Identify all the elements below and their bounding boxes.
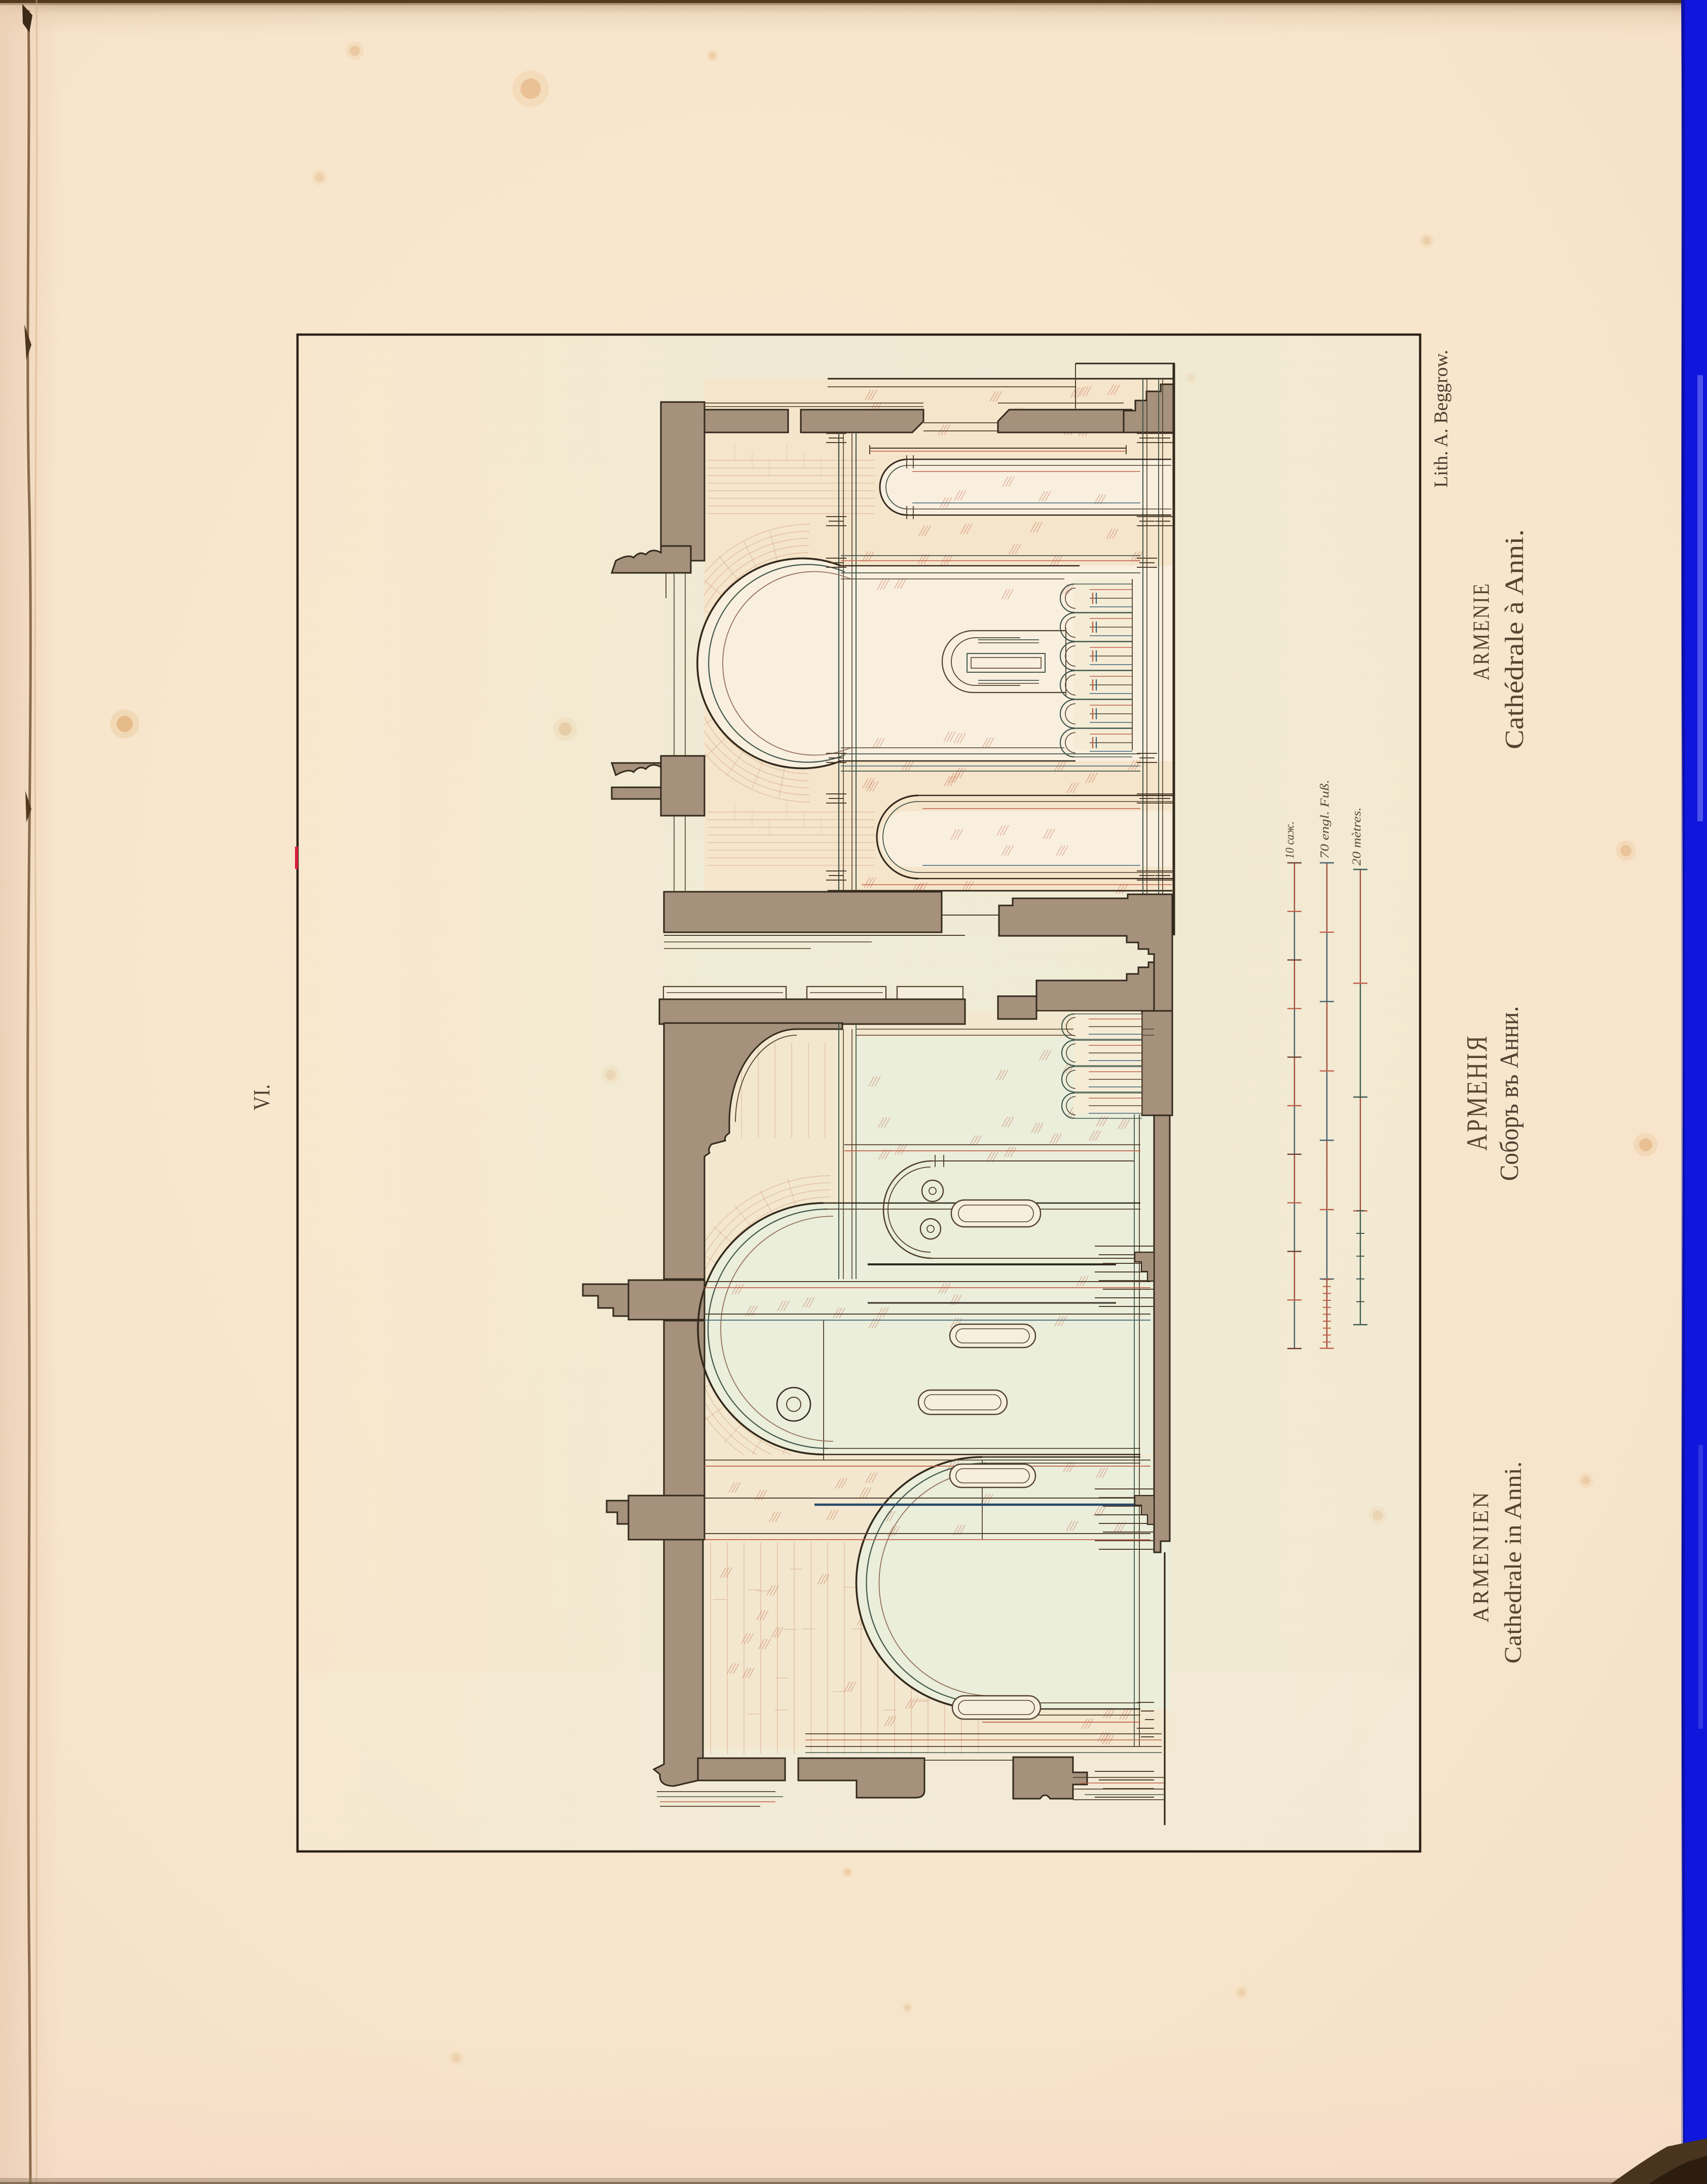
svg-text:ARMENIE: ARMENIE [1468, 582, 1494, 680]
svg-text:Cathedrale in Anni.: Cathedrale in Anni. [1500, 1462, 1527, 1664]
svg-text:АРМЕНІЯ: АРМЕНІЯ [1460, 1034, 1493, 1151]
svg-text:20 mètres.: 20 mètres. [1351, 808, 1364, 866]
svg-text:10 саж.: 10 саж. [1284, 821, 1297, 859]
svg-text:Cathédrale à Anni.: Cathédrale à Anni. [1500, 529, 1529, 749]
svg-text:Соборъ въ Анни.: Соборъ въ Анни. [1495, 1006, 1524, 1181]
svg-text:ARMENIEN: ARMENIEN [1468, 1490, 1493, 1623]
svg-text:70 engl. Fuß.: 70 engl. Fuß. [1319, 780, 1332, 859]
svg-text:VI.: VI. [249, 1084, 275, 1110]
svg-text:Lith. A. Beggrow.: Lith. A. Beggrow. [1431, 350, 1452, 488]
